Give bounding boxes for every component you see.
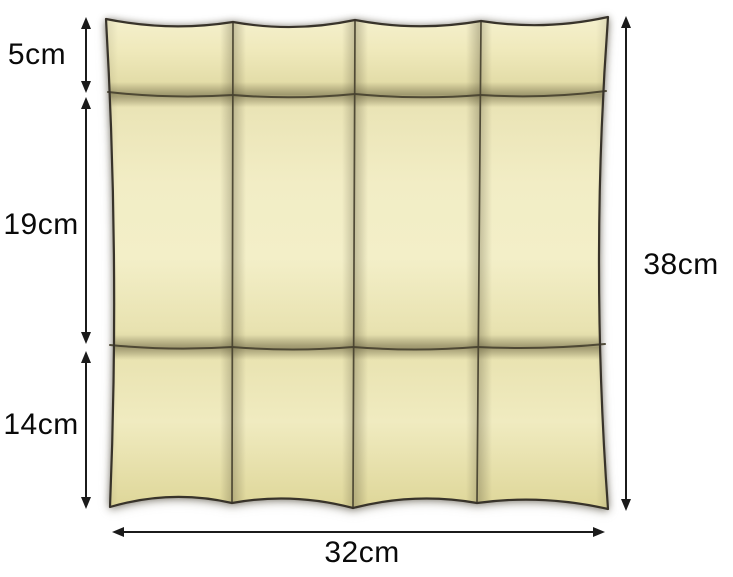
right-dim-arrow-38cm [621, 16, 631, 511]
panel-drawing [0, 0, 733, 577]
arrowhead-down-icon [621, 499, 631, 511]
dim-label-14cm: 14cm [3, 410, 78, 440]
arrowhead-up-icon [81, 17, 91, 29]
dim-label-5cm: 5cm [8, 40, 66, 70]
arrowhead-down-icon [81, 81, 91, 93]
arrowhead-down-icon [81, 497, 91, 509]
left-dim-arrow-19cm [81, 97, 91, 344]
dim-label-32cm: 32cm [324, 538, 399, 568]
arrowhead-up-icon [621, 16, 631, 28]
left-dim-arrow-14cm [81, 351, 91, 509]
dimension-diagram: 5cm 19cm 14cm 38cm 32cm [0, 0, 733, 577]
arrowhead-up-icon [81, 351, 91, 363]
arrowhead-left-icon [112, 527, 124, 537]
dim-label-38cm: 38cm [643, 250, 718, 280]
dim-label-19cm: 19cm [3, 210, 78, 240]
panel-shading [100, 6, 616, 514]
arrowhead-right-icon [593, 527, 605, 537]
arrowhead-down-icon [81, 332, 91, 344]
arrowhead-up-icon [81, 97, 91, 109]
left-dim-arrow-5cm [81, 17, 91, 93]
